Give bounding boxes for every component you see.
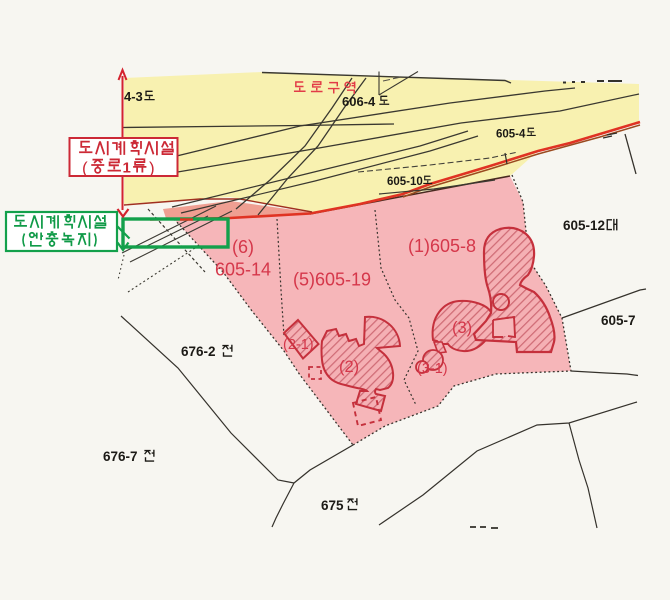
svg-text:606-4: 606-4 — [342, 94, 376, 109]
svg-text:(5)605-19: (5)605-19 — [293, 270, 371, 290]
svg-text:675: 675 — [321, 498, 344, 513]
svg-text:605-10: 605-10 — [387, 176, 423, 188]
svg-text:605-4: 605-4 — [496, 129, 526, 141]
svg-text:1: 1 — [123, 160, 131, 177]
svg-text:676-2: 676-2 — [181, 344, 216, 359]
svg-text:(3): (3) — [452, 319, 472, 337]
svg-text:(1)605-8: (1)605-8 — [408, 236, 476, 256]
svg-text:605-7: 605-7 — [601, 313, 636, 328]
svg-text:(: ( — [82, 159, 88, 178]
svg-text:(2): (2) — [339, 358, 359, 376]
svg-text:605-14: 605-14 — [215, 260, 271, 280]
svg-text:(3-1): (3-1) — [417, 361, 448, 377]
svg-text:676-7: 676-7 — [103, 449, 138, 464]
svg-text:(6): (6) — [232, 237, 254, 257]
svg-text:605-12: 605-12 — [563, 218, 605, 233]
svg-text:(2-1): (2-1) — [283, 337, 314, 353]
svg-text:4-3: 4-3 — [124, 89, 143, 104]
svg-text:): ) — [149, 159, 155, 178]
